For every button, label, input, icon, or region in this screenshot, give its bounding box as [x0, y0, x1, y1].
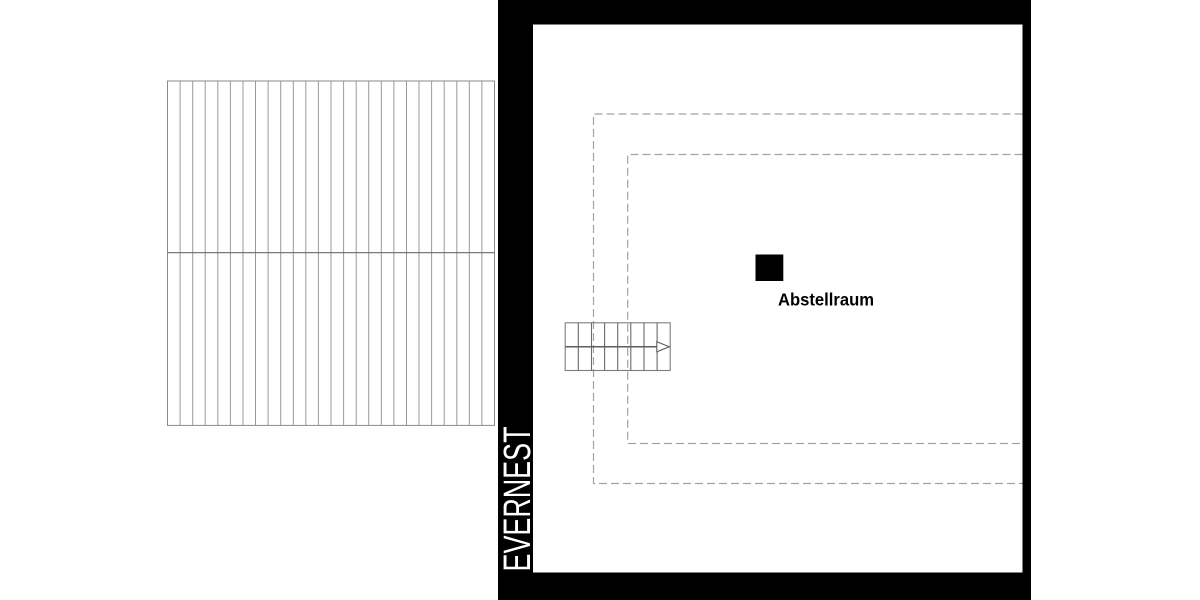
svg-text:EVERNEST: EVERNEST: [497, 427, 539, 572]
svg-text:Abstellraum: Abstellraum: [778, 290, 874, 310]
